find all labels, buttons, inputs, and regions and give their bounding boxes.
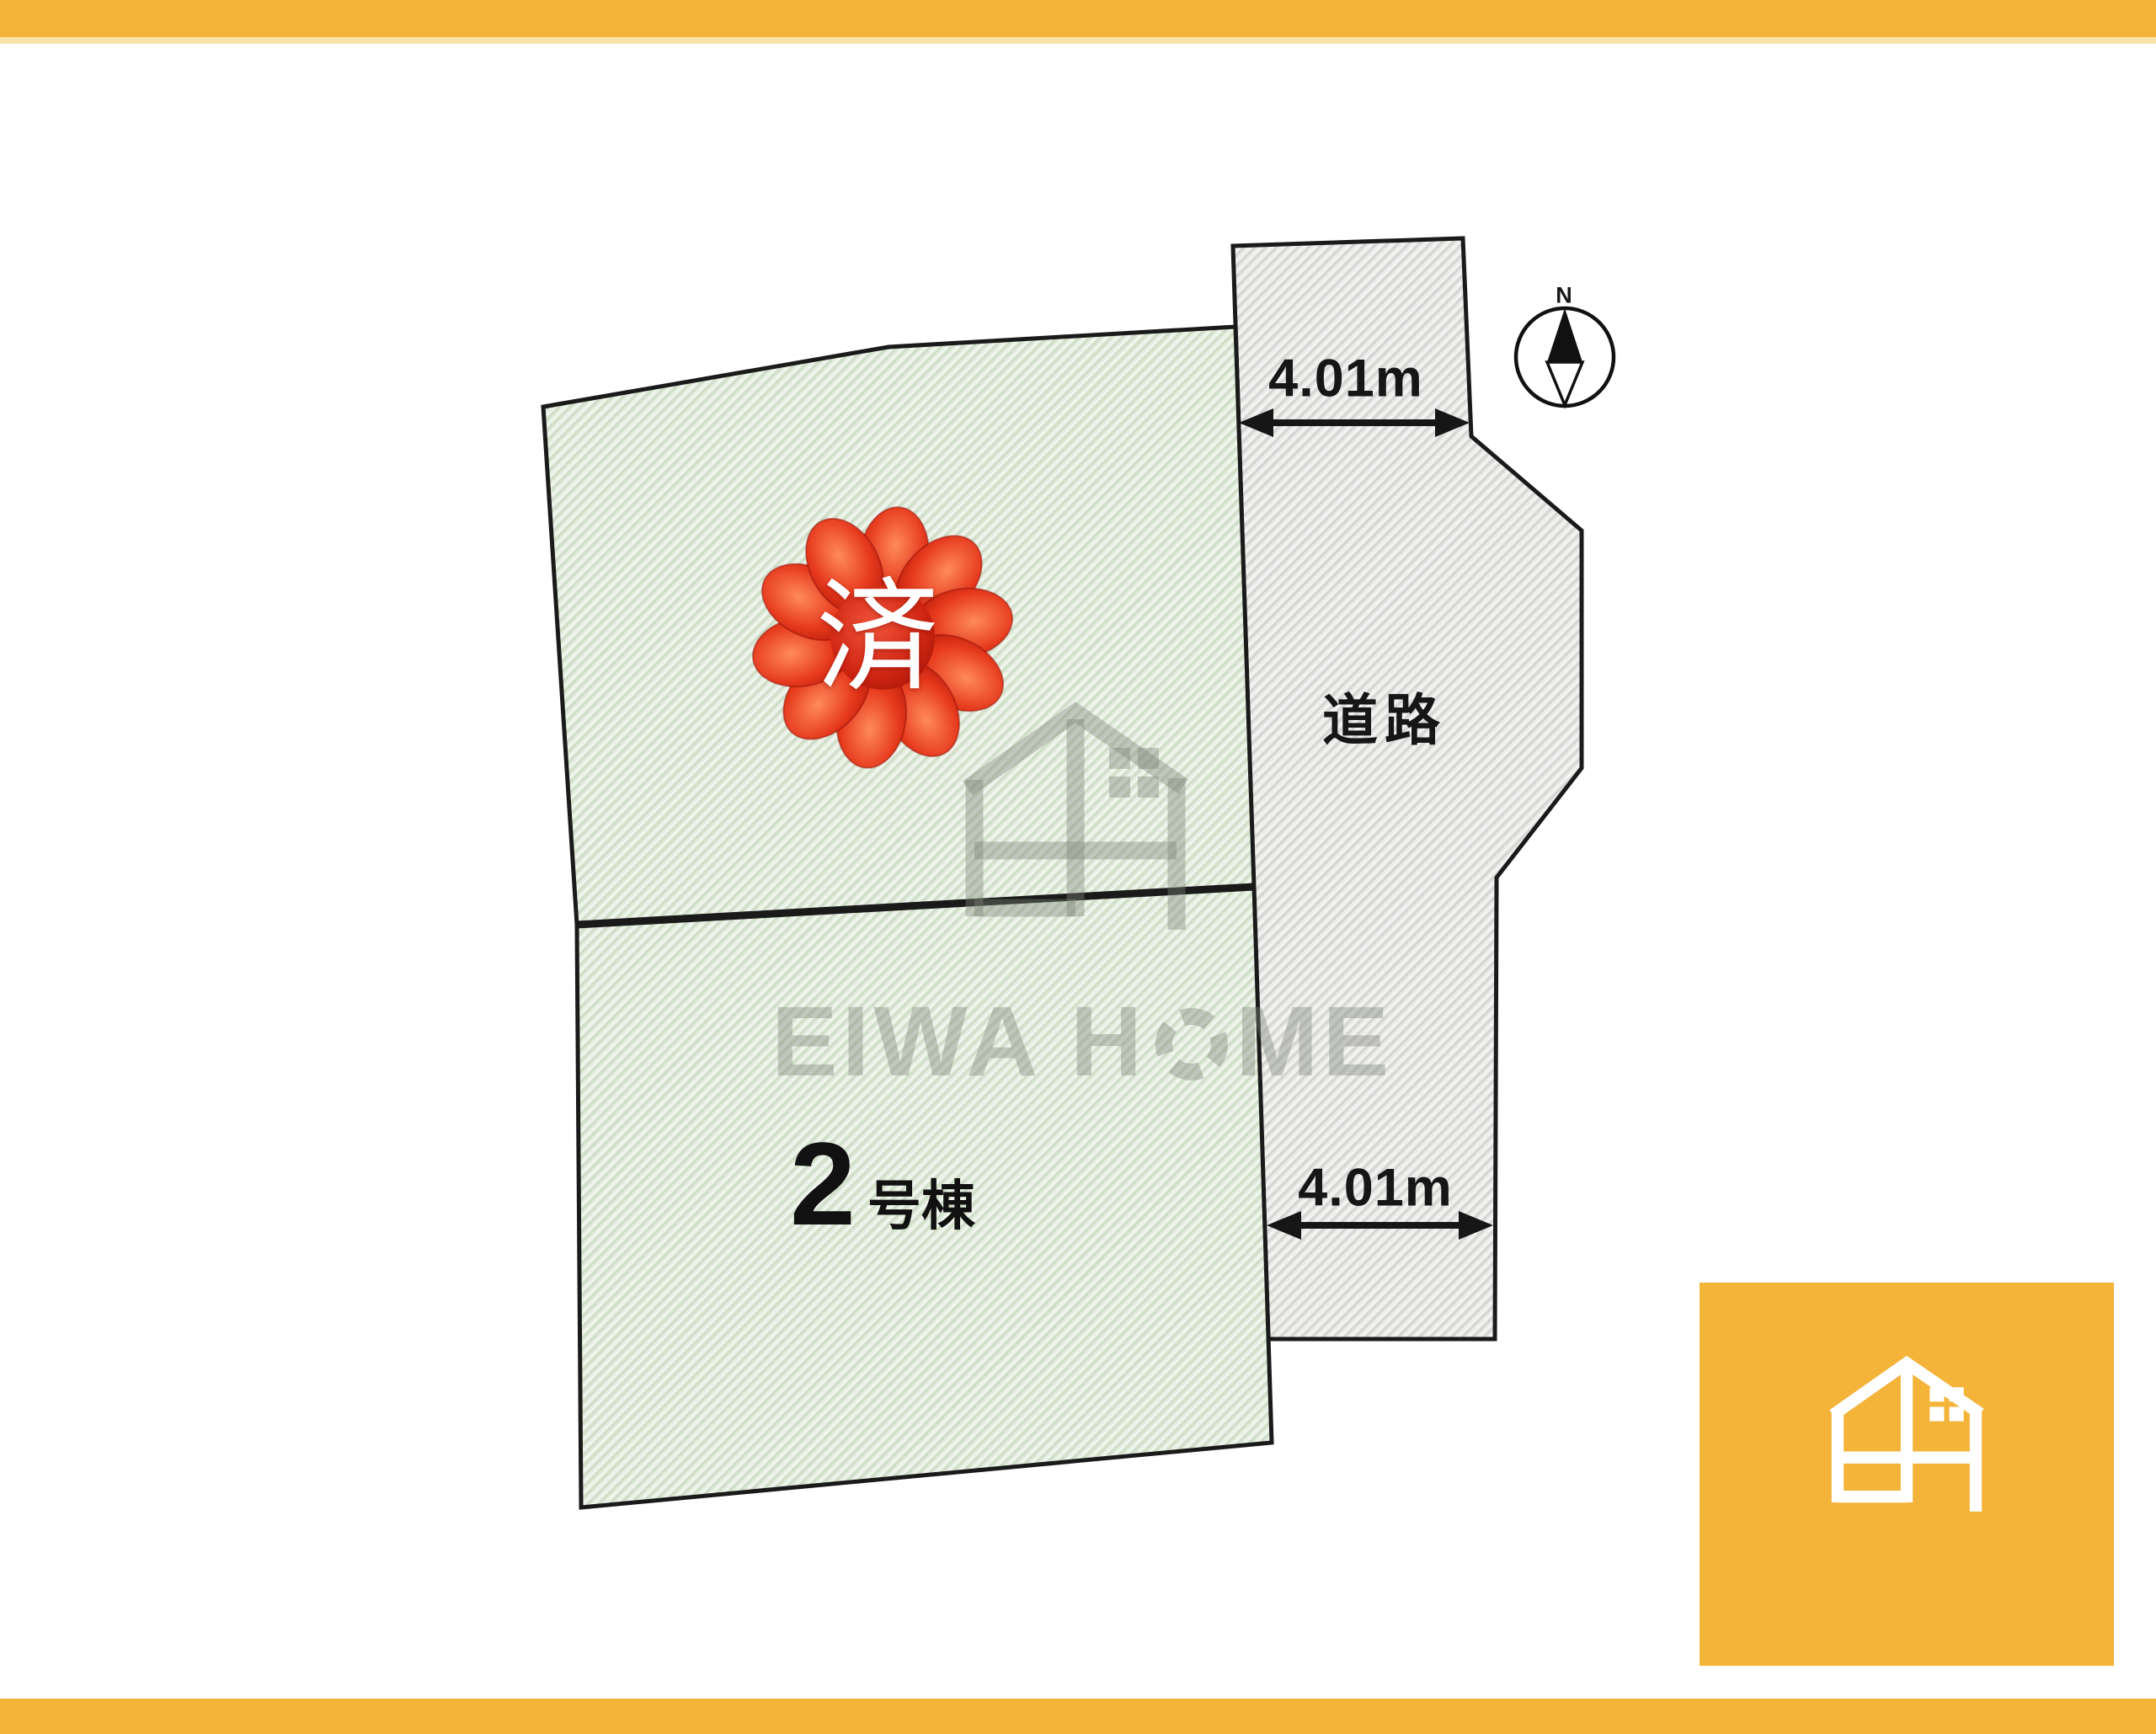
watermark-brand-text: EIWA H ME	[771, 992, 1393, 1091]
flyer-canvas: 4.01m 4.01m 道路 N 済 2号棟 EIWA H ME EIWA H …	[0, 0, 2156, 1734]
company-logo: EIWA H ME	[1700, 1283, 2114, 1666]
top-frame-bar	[0, 0, 2156, 37]
watermark-brand-o-icon	[1153, 1006, 1230, 1083]
road-width-bottom-label: 4.01m	[1298, 1162, 1453, 1215]
compass-icon	[1516, 308, 1614, 406]
logo-house-icon	[1820, 1355, 1993, 1515]
unit2-number: 2	[790, 1118, 856, 1250]
sold-badge: 済	[816, 576, 939, 699]
unit2-label: 2号棟	[790, 1125, 975, 1243]
compass-north-label: N	[1556, 285, 1572, 307]
road-label: 道路	[1322, 692, 1447, 748]
unit2-suffix: 号棟	[867, 1176, 975, 1236]
top-frame-bar-fade	[0, 37, 2156, 44]
watermark-brand-right: ME	[1235, 992, 1393, 1091]
bottom-frame-bar	[0, 1699, 2156, 1734]
watermark-brand-left: EIWA H	[771, 992, 1146, 1091]
road-width-top-label: 4.01m	[1268, 353, 1423, 406]
